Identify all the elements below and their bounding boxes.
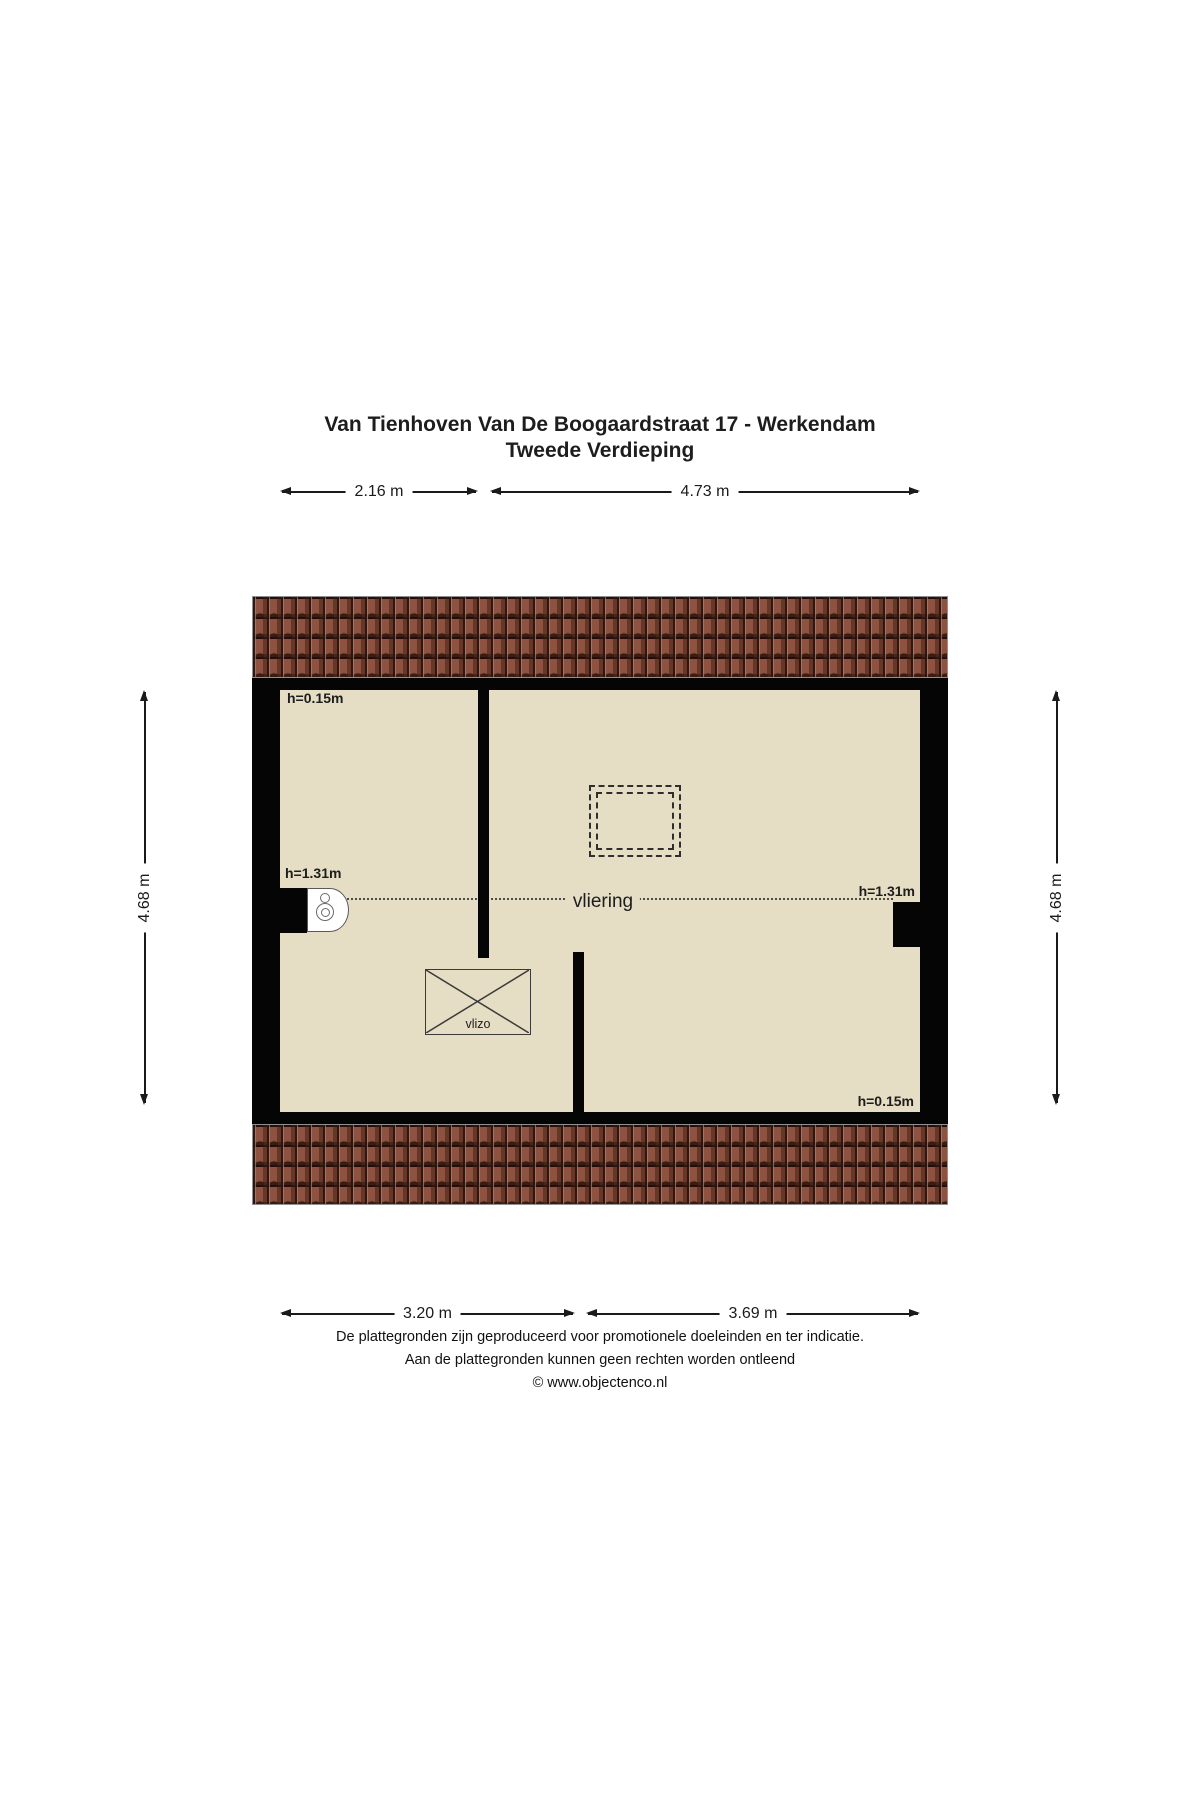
address-title: Van Tienhoven Van De Boogaardstraat 17 -… bbox=[0, 412, 1200, 438]
skylight-inner-outline bbox=[596, 792, 674, 850]
dimension-top-left: 2.16 m bbox=[280, 484, 478, 500]
dimension-value: 4.68 m bbox=[1048, 863, 1066, 932]
roof-tiles-bottom bbox=[252, 1124, 948, 1205]
disclaimer-line-2: Aan de plattegronden kunnen geen rechten… bbox=[0, 1349, 1200, 1372]
dimension-top-right: 4.73 m bbox=[490, 484, 920, 500]
floorplan-page: Van Tienhoven Van De Boogaardstraat 17 -… bbox=[0, 0, 1200, 1800]
skylight-dashed-outline bbox=[589, 785, 681, 857]
arrow-left-icon bbox=[490, 487, 501, 495]
floor-subtitle: Tweede Verdieping bbox=[0, 438, 1200, 464]
arrow-down-icon bbox=[1052, 1094, 1060, 1105]
dimension-value: 4.68 m bbox=[136, 863, 154, 932]
arrow-right-icon bbox=[909, 487, 920, 495]
dimension-value: 4.73 m bbox=[672, 483, 739, 501]
room-name-label: vliering bbox=[566, 891, 640, 913]
roof-tiles-top bbox=[252, 596, 948, 678]
boiler-ring-inner bbox=[321, 908, 330, 917]
height-label-top-left: h=0.15m bbox=[287, 690, 343, 706]
height-label-right: h=1.31m bbox=[859, 883, 915, 899]
vlizotrap-hatch-icon: vlizo bbox=[425, 969, 531, 1035]
disclaimer: De plattegronden zijn geproduceerd voor … bbox=[0, 1326, 1200, 1395]
page-title: Van Tienhoven Van De Boogaardstraat 17 -… bbox=[0, 412, 1200, 464]
dimension-bottom-right: 3.69 m bbox=[586, 1306, 920, 1322]
arrow-right-icon bbox=[467, 487, 478, 495]
interior-wall-lower bbox=[573, 952, 584, 1112]
height-label-left: h=1.31m bbox=[285, 865, 341, 881]
dimension-value: 3.69 m bbox=[720, 1305, 787, 1323]
dimension-left-height: 4.68 m bbox=[137, 690, 153, 1105]
height-label-bottom-right: h=0.15m bbox=[858, 1093, 914, 1109]
disclaimer-line-1: De plattegronden zijn geproduceerd voor … bbox=[0, 1326, 1200, 1349]
floorplan: vlizo h=0.15m h=1.31m h=1.31m h=0.15m vl… bbox=[252, 596, 948, 1205]
wall-protrusion-left bbox=[280, 888, 307, 933]
arrow-up-icon bbox=[140, 690, 148, 701]
dimension-value: 2.16 m bbox=[346, 483, 413, 501]
copyright-line: © www.objectenco.nl bbox=[0, 1372, 1200, 1395]
dimension-bottom-left: 3.20 m bbox=[280, 1306, 575, 1322]
interior-wall-upper bbox=[478, 690, 489, 958]
arrow-right-icon bbox=[909, 1309, 920, 1317]
arrow-up-icon bbox=[1052, 690, 1060, 701]
dimension-right-height: 4.68 m bbox=[1049, 690, 1065, 1105]
boiler-icon bbox=[307, 888, 349, 932]
arrow-left-icon bbox=[280, 487, 291, 495]
arrow-left-icon bbox=[280, 1309, 291, 1317]
arrow-right-icon bbox=[564, 1309, 575, 1317]
boiler-valve-circle bbox=[320, 893, 330, 903]
dimension-value: 3.20 m bbox=[394, 1305, 461, 1323]
wall-protrusion-right bbox=[893, 902, 920, 947]
hatch-label: vlizo bbox=[462, 1017, 493, 1031]
arrow-left-icon bbox=[586, 1309, 597, 1317]
arrow-down-icon bbox=[140, 1094, 148, 1105]
